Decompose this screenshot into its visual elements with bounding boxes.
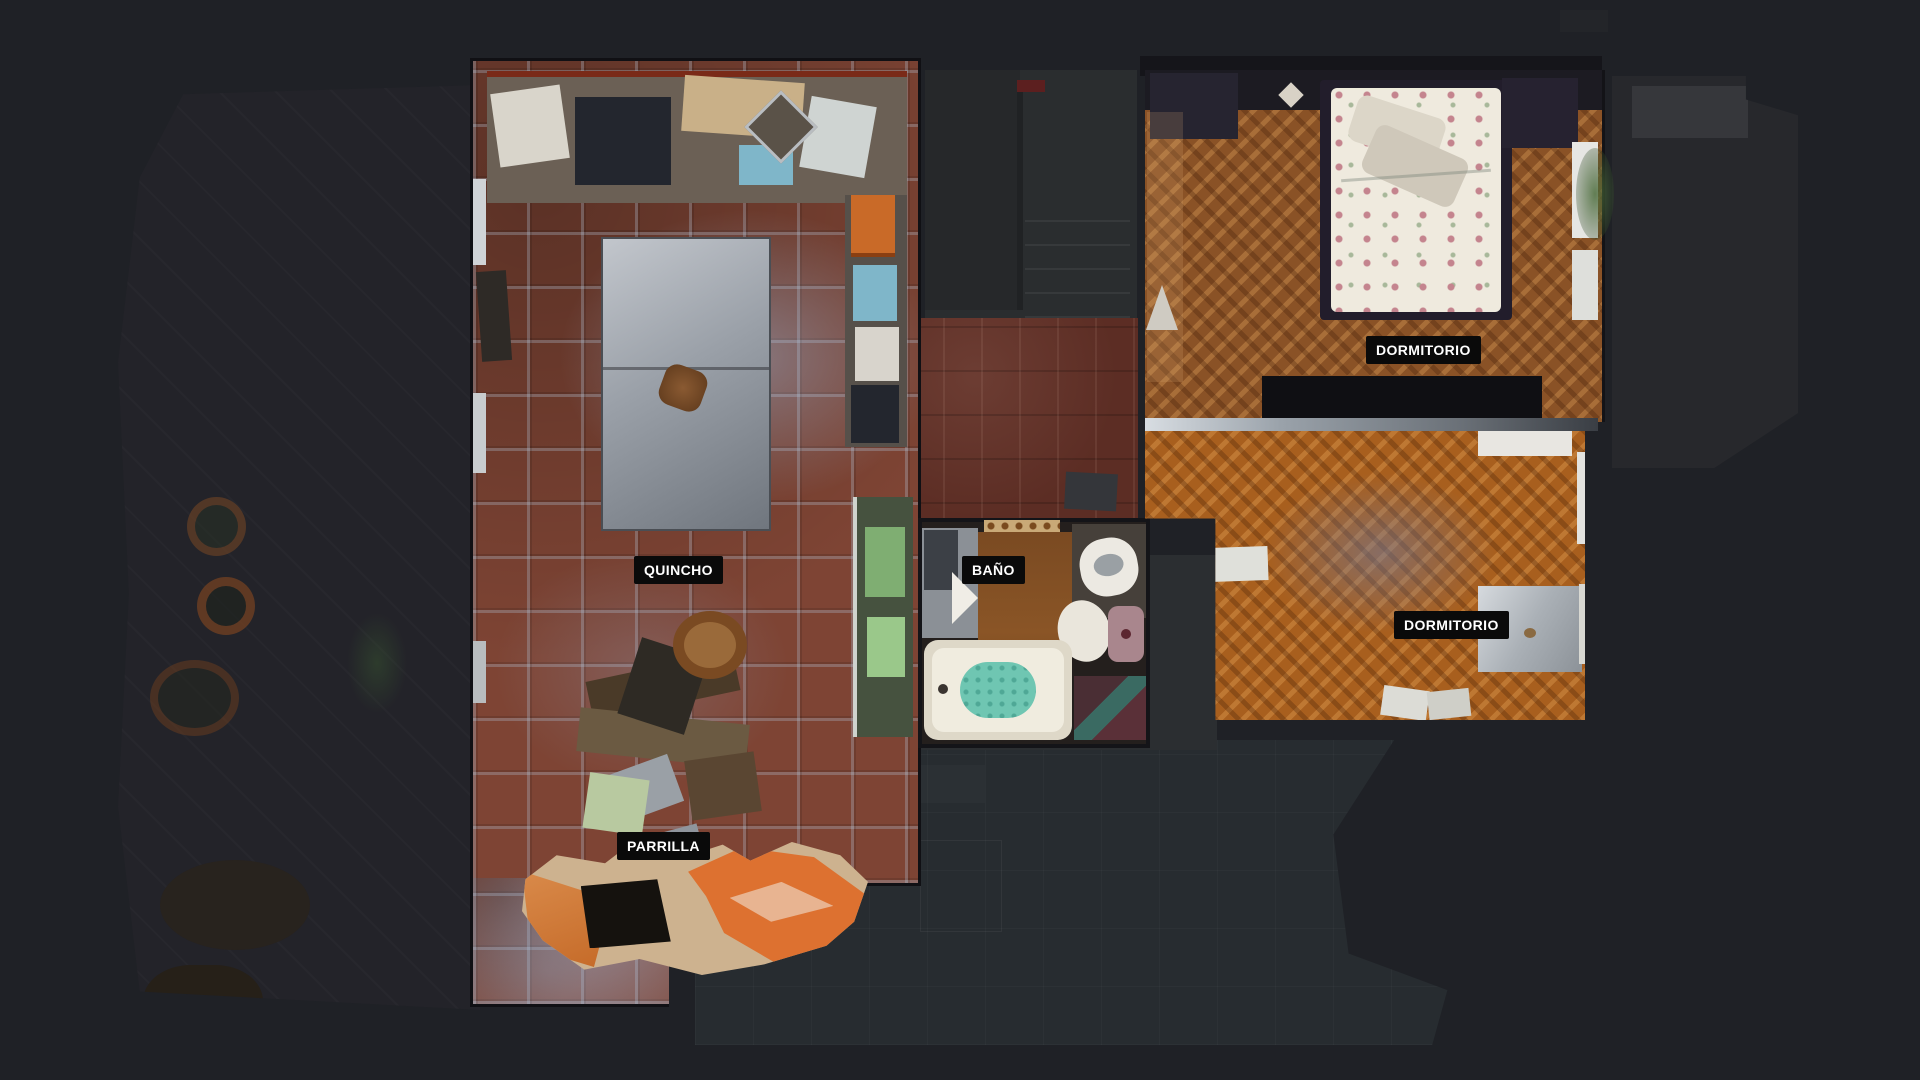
dim-area-sliver: [1560, 10, 1608, 32]
plant-pot: [197, 577, 255, 635]
stair-railing: [1017, 80, 1023, 310]
parquet-light-strip: [1147, 112, 1183, 382]
side-shelf: [845, 195, 907, 447]
window-plant: [1576, 148, 1614, 240]
bath-trim-dotted: [984, 520, 1060, 532]
tub-mat: [960, 662, 1036, 718]
chair: [684, 751, 762, 820]
clutter-item: [799, 96, 877, 178]
terrace-patch: [915, 765, 985, 803]
bathtub: [924, 640, 1072, 740]
clutter-item: [855, 327, 899, 381]
clutter-item: [853, 265, 897, 321]
chair: [582, 772, 649, 836]
patio-table: [160, 860, 310, 950]
awning-opening: [581, 879, 671, 948]
metal-table: [601, 237, 771, 531]
wall-segment: [473, 641, 486, 703]
clutter-item: [490, 84, 570, 167]
cabinet-shelf: [867, 617, 905, 677]
tub-drain: [938, 684, 948, 694]
stair-red-detail: [1017, 80, 1045, 92]
stair-dark-flight: [925, 70, 1020, 310]
black-dresser: [1262, 376, 1542, 420]
room-label-parrilla[interactable]: PARRILLA: [617, 832, 710, 860]
bedroom-divider-wall: [1145, 418, 1598, 431]
hallway[interactable]: [905, 318, 1138, 548]
floorplan-view[interactable]: QUINCHO BAÑO DORMITORIO DORMITORIO PARRI…: [0, 0, 1920, 1080]
room-dormitorio-1[interactable]: [1145, 70, 1605, 422]
clutter-item: [575, 97, 671, 185]
window-frame: [1572, 250, 1598, 320]
bench: [476, 270, 512, 362]
bed-frame: [1320, 80, 1512, 320]
wall-segment: [473, 179, 486, 265]
hallway-box: [1064, 472, 1118, 512]
window-frame: [1579, 584, 1605, 664]
balcony-dim-area: [1612, 76, 1798, 468]
room-label-quincho[interactable]: QUINCHO: [634, 556, 723, 584]
cabinet-shelf: [865, 527, 905, 597]
round-object: [673, 611, 747, 679]
garden-plant: [347, 613, 407, 713]
floor-smudge: [1265, 473, 1495, 633]
shelf-clutter: [487, 71, 907, 203]
balcony-furniture: [1632, 86, 1748, 138]
sink-basin: [1092, 552, 1125, 579]
patio-chairs: [143, 965, 263, 1055]
room-label-dormitorio-1[interactable]: DORMITORIO: [1366, 336, 1481, 364]
stair-steps: [1025, 220, 1130, 328]
patio-dim-area: [118, 85, 480, 1010]
room-quincho[interactable]: [470, 58, 921, 886]
plant-pot: [150, 660, 239, 736]
window-frame: [1577, 452, 1603, 544]
room-label-dormitorio-2[interactable]: DORMITORIO: [1394, 611, 1509, 639]
door-frame: [1427, 688, 1472, 720]
bath-clutter: [1074, 676, 1146, 740]
dresser-mark: [1524, 628, 1536, 638]
white-shelf: [1478, 430, 1572, 456]
clutter-item: [851, 385, 899, 443]
sink: [1075, 533, 1142, 600]
nightstand: [1502, 78, 1578, 148]
door-frame: [1380, 685, 1430, 721]
wall-segment: [473, 393, 486, 473]
bidet-lid: [1108, 606, 1144, 662]
patio-tile-lines: [118, 85, 480, 1010]
terrace-outline: [920, 840, 1002, 932]
room-label-bano[interactable]: BAÑO: [962, 556, 1025, 584]
room-bano[interactable]: [918, 518, 1150, 748]
staircase[interactable]: [925, 70, 1137, 332]
lid-dot: [1121, 629, 1131, 639]
green-cabinet: [853, 497, 913, 737]
stacked-chairs: [568, 636, 778, 841]
orange-cabinet: [851, 195, 895, 257]
plant-pot: [187, 497, 246, 556]
bed-mattress: [1331, 88, 1501, 312]
